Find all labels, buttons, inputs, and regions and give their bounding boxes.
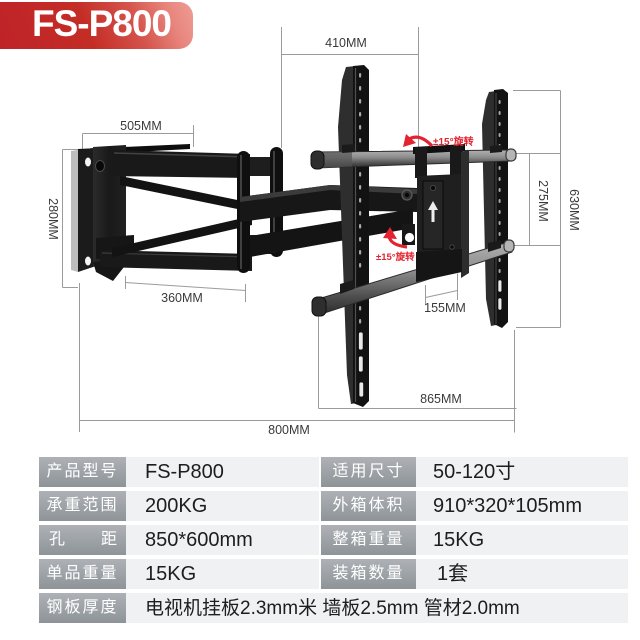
svg-text:280MM: 280MM xyxy=(46,198,60,240)
svg-text:±15°旋转: ±15°旋转 xyxy=(433,135,474,148)
svg-text:410MM: 410MM xyxy=(325,36,367,50)
svg-text:630MM: 630MM xyxy=(567,189,581,231)
svg-text:505MM: 505MM xyxy=(120,119,162,133)
svg-text:360MM: 360MM xyxy=(161,291,203,305)
svg-text:155MM: 155MM xyxy=(424,301,466,315)
svg-text:±15°旋转: ±15°旋转 xyxy=(376,251,415,263)
svg-text:800MM: 800MM xyxy=(268,423,310,437)
svg-text:865MM: 865MM xyxy=(420,392,462,406)
svg-text:275MM: 275MM xyxy=(536,180,550,222)
